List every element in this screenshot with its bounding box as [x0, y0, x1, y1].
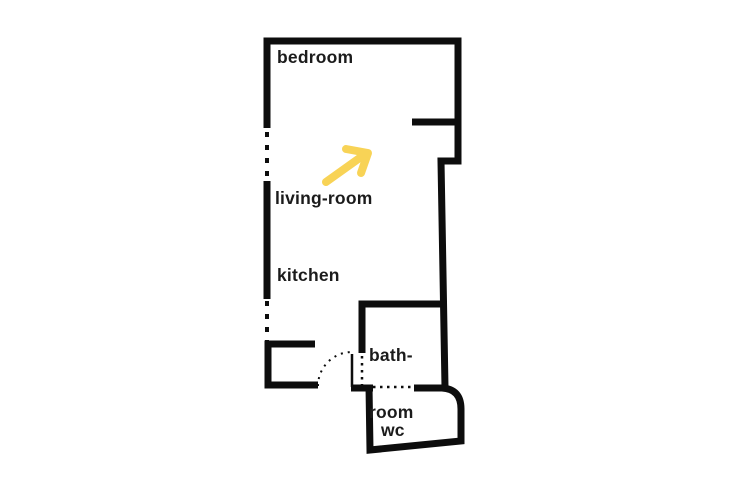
living-room-label: living-room — [275, 189, 372, 208]
direction-arrow-icon — [326, 149, 368, 182]
bathroom-label-line1: bath- — [369, 346, 414, 365]
entrance-door-swing-arc — [318, 352, 352, 386]
kitchen-label: kitchen — [277, 266, 340, 285]
floor-plan-canvas: bedroom living-room kitchen bath- room w… — [0, 0, 750, 500]
kitchen-corner-walls — [268, 344, 318, 385]
wc-label: wc — [381, 421, 405, 440]
direction-arrow-shaft — [326, 157, 361, 182]
bedroom-label: bedroom — [277, 48, 353, 67]
